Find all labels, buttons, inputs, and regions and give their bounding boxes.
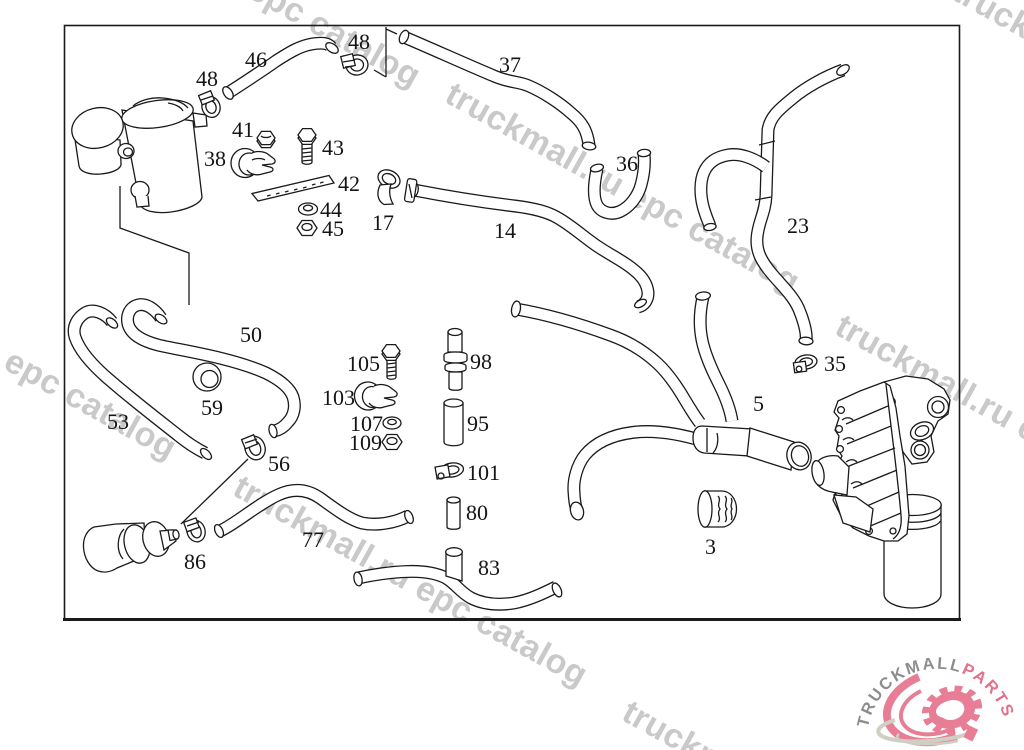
svg-text:56: 56 (268, 451, 290, 476)
svg-text:3: 3 (705, 534, 716, 559)
svg-text:80: 80 (466, 500, 488, 525)
svg-text:37: 37 (499, 52, 521, 77)
svg-text:105: 105 (347, 351, 380, 376)
svg-text:45: 45 (322, 216, 344, 241)
svg-text:truckmall.ru epc catalog: truckmall.ru epc catalog (946, 0, 1024, 198)
svg-text:83: 83 (478, 555, 500, 580)
svg-text:42: 42 (338, 171, 360, 196)
svg-text:23: 23 (787, 213, 809, 238)
svg-text:98: 98 (470, 349, 492, 374)
svg-text:48: 48 (196, 66, 218, 91)
svg-text:38: 38 (204, 146, 226, 171)
svg-text:truckmall.ru epc catalog: truckmall.ru epc catalog (227, 468, 594, 694)
svg-text:50: 50 (240, 322, 262, 347)
svg-text:5: 5 (753, 391, 764, 416)
svg-text:17: 17 (372, 210, 394, 235)
svg-text:53: 53 (107, 409, 129, 434)
svg-text:103: 103 (322, 385, 355, 410)
svg-text:59: 59 (201, 395, 223, 420)
svg-text:109: 109 (349, 430, 382, 455)
svg-text:86: 86 (184, 549, 206, 574)
svg-text:43: 43 (322, 135, 344, 160)
svg-text:46: 46 (245, 47, 267, 72)
svg-text:35: 35 (824, 351, 846, 376)
svg-text:77: 77 (302, 527, 324, 552)
svg-text:14: 14 (494, 218, 516, 243)
svg-text:101: 101 (467, 460, 500, 485)
svg-text:48: 48 (348, 29, 370, 54)
svg-text:95: 95 (467, 411, 489, 436)
svg-text:36: 36 (616, 151, 638, 176)
svg-text:41: 41 (232, 117, 254, 142)
